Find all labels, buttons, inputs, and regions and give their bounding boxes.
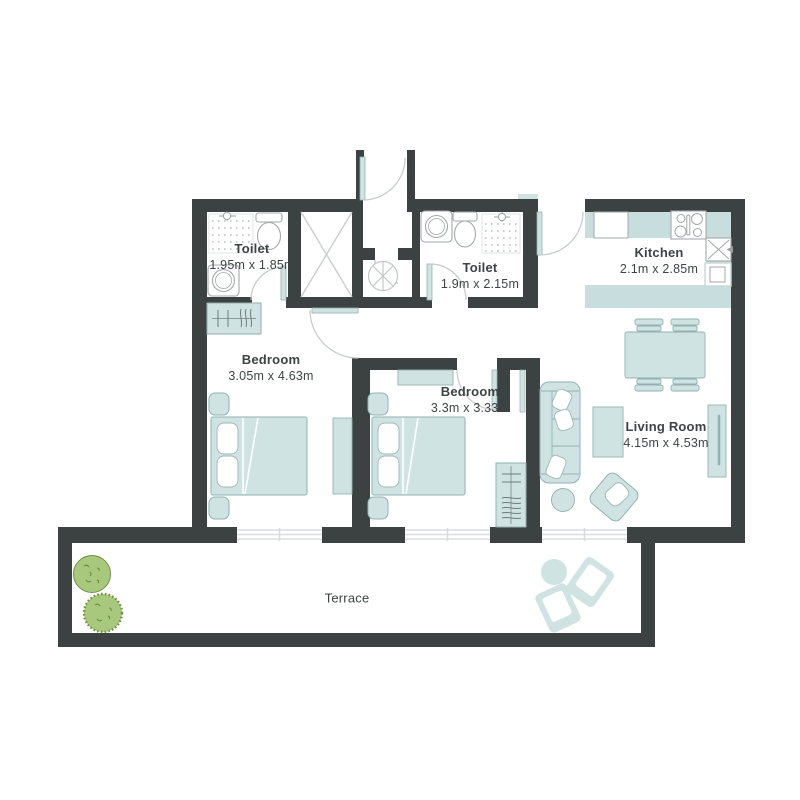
plant-icon [74, 556, 111, 593]
ottoman [552, 489, 575, 512]
mirror [520, 370, 525, 412]
nightstand [209, 497, 229, 519]
window-sill [518, 194, 538, 199]
pillow [378, 456, 399, 487]
pillow [217, 423, 238, 454]
floor-plan: Toilet 1.95m x 1.85m Toilet 1.9m x 2.15m… [0, 0, 800, 800]
toilet-2-fixtures [421, 211, 520, 253]
living-room-furniture [540, 382, 726, 524]
washbasin-icon [421, 211, 452, 242]
utility-shaft [301, 212, 352, 297]
nightstand [368, 497, 388, 519]
floor-plan-drawing [0, 0, 800, 800]
room-label-kitchen: Kitchen 2.1m x 2.85m [620, 246, 698, 276]
pillow [378, 423, 399, 454]
closet [496, 463, 526, 527]
wc-icon [453, 212, 477, 247]
room-name: Terrace [325, 592, 370, 607]
fridge-icon [594, 212, 628, 238]
room-label-terrace: Terrace [325, 592, 370, 607]
dining-set [625, 319, 705, 391]
room-name: Living Room [623, 420, 708, 435]
room-dimensions: 3.05m x 4.63m [228, 369, 313, 383]
room-dimensions: 3.3m x 3.33m [431, 401, 509, 415]
armchair [587, 470, 641, 524]
stove-icon [671, 211, 706, 239]
bedroom-1-furniture [207, 303, 352, 519]
room-name: Toilet [209, 242, 294, 257]
room-dimensions: 4.15m x 4.53m [623, 436, 708, 450]
shower-head-icon [219, 211, 236, 221]
outdoor-table [541, 559, 567, 585]
room-dimensions: 2.1m x 2.85m [620, 262, 698, 276]
room-dimensions: 1.9m x 2.15m [441, 277, 519, 291]
double-bed [211, 417, 307, 495]
room-name: Bedroom [431, 385, 509, 400]
room-name: Bedroom [228, 353, 313, 368]
sideboard [593, 407, 623, 457]
washing-machine-icon [369, 262, 398, 291]
room-label-bedroom-2: Bedroom 3.3m x 3.33m [431, 385, 509, 415]
nightstand [209, 393, 229, 415]
room-label-bedroom-1: Bedroom 3.05m x 4.63m [228, 353, 313, 383]
dishwasher-icon [705, 263, 731, 286]
plant-icon [84, 594, 122, 632]
tv-console [708, 405, 726, 477]
nightstand [368, 393, 388, 415]
terrace-windows [237, 528, 627, 541]
wardrobe [207, 303, 261, 334]
kitchen-sink-icon [706, 238, 733, 261]
room-label-toilet-2: Toilet 1.9m x 2.15m [441, 261, 519, 291]
double-bed [372, 417, 465, 495]
dresser [333, 418, 352, 494]
room-name: Kitchen [620, 246, 698, 261]
dresser [398, 370, 453, 385]
room-dimensions: 1.95m x 1.85m [209, 258, 294, 272]
room-label-toilet-1: Toilet 1.95m x 1.85m [209, 242, 294, 272]
dining-table [625, 332, 705, 378]
pillow [217, 456, 238, 487]
shower-floor-dots [485, 224, 517, 251]
room-label-living-room: Living Room 4.15m x 4.53m [623, 420, 708, 450]
room-name: Toilet [441, 261, 519, 276]
sofa [540, 382, 580, 483]
